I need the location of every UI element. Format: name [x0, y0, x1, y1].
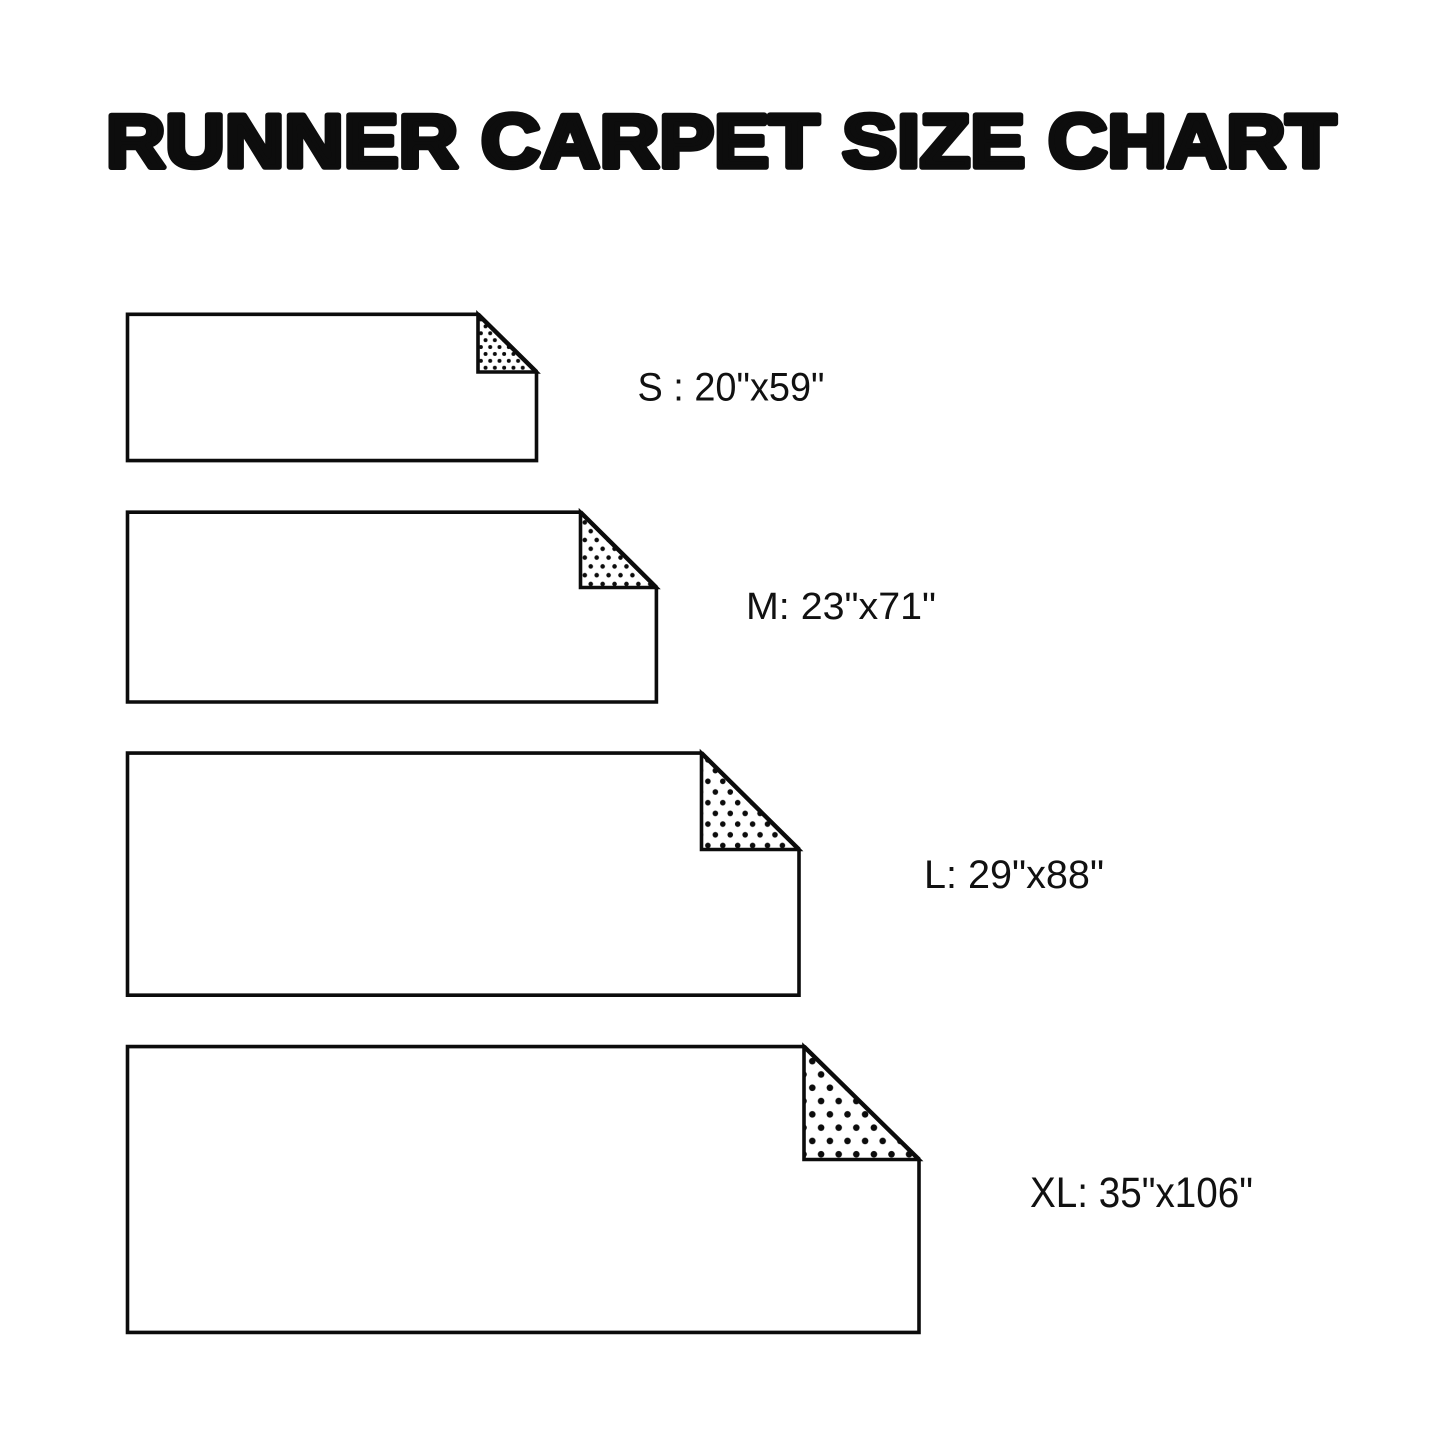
svg-text:L: 29"x88": L: 29"x88"	[924, 853, 1104, 897]
svg-text:S : 20"x59": S : 20"x59"	[638, 366, 825, 410]
svg-text:RUNNER CARPET SIZE CHART: RUNNER CARPET SIZE CHART	[106, 99, 1336, 183]
svg-text:XL: 35"x106": XL: 35"x106"	[1030, 1169, 1253, 1217]
svg-text:M: 23"x71": M: 23"x71"	[746, 586, 936, 628]
